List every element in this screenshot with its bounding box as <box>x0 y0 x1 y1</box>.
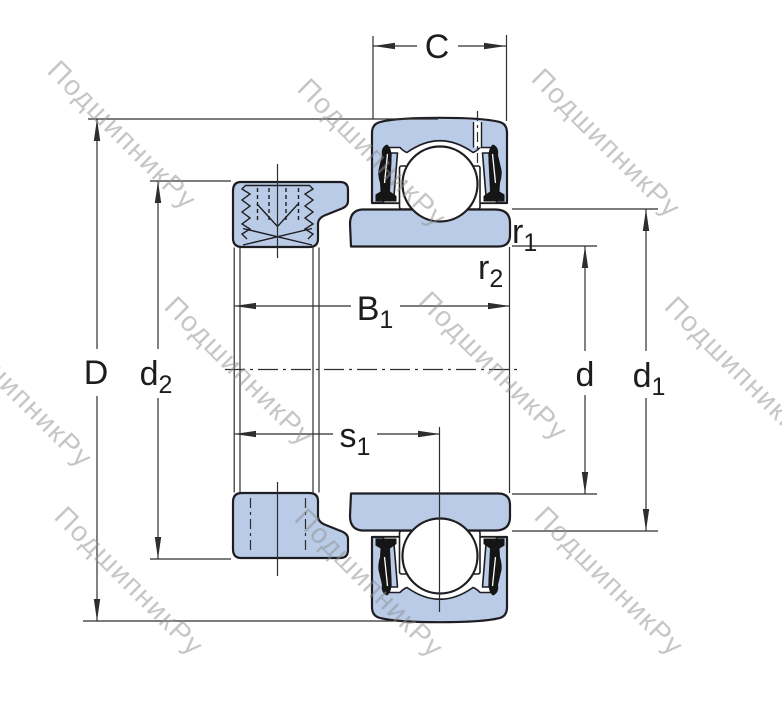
watermark: ПодшипникРу <box>659 290 782 451</box>
watermark: ПодшипникРу <box>42 54 203 215</box>
arrow-s1-right <box>418 431 440 437</box>
arrow-d-top <box>582 246 588 268</box>
arrow-B1-right <box>488 303 510 309</box>
arrow-C-right <box>484 43 506 49</box>
dim-label-D: D <box>84 354 109 392</box>
watermark: ПодшипникРу <box>49 500 210 661</box>
arrow-d1-top <box>643 209 649 231</box>
dim-label-d1: d1 <box>633 357 666 401</box>
drawing-page: C D d2 B1 s1 d d1 r1 r2 ПодшипникРу Подш… <box>0 0 782 704</box>
arrow-C-left <box>373 43 395 49</box>
arrow-d-bottom <box>582 472 588 494</box>
dim-label-r1: r1 <box>512 213 537 257</box>
arrow-d2-bottom <box>155 537 161 559</box>
arrow-d1-bottom <box>643 509 649 531</box>
watermark: ПодшипникРу <box>526 62 687 223</box>
bearing-drawing: C D d2 B1 s1 d d1 r1 r2 ПодшипникРу Подш… <box>0 0 782 704</box>
arrow-D-bottom <box>94 599 100 621</box>
arrow-B1-left <box>234 303 256 309</box>
watermark: ПодшипникРу <box>529 500 690 661</box>
dim-label-s1: s1 <box>340 417 371 461</box>
dim-label-B1: B1 <box>357 290 394 334</box>
arrow-s1-left <box>234 431 256 437</box>
dim-label-d2: d2 <box>140 355 173 399</box>
watermark: ПодшипникРу <box>0 312 99 473</box>
dim-label-d: d <box>576 356 595 394</box>
dim-label-C: C <box>425 28 450 66</box>
dim-label-r2: r2 <box>478 249 503 293</box>
watermark: ПодшипникРу <box>413 285 574 446</box>
